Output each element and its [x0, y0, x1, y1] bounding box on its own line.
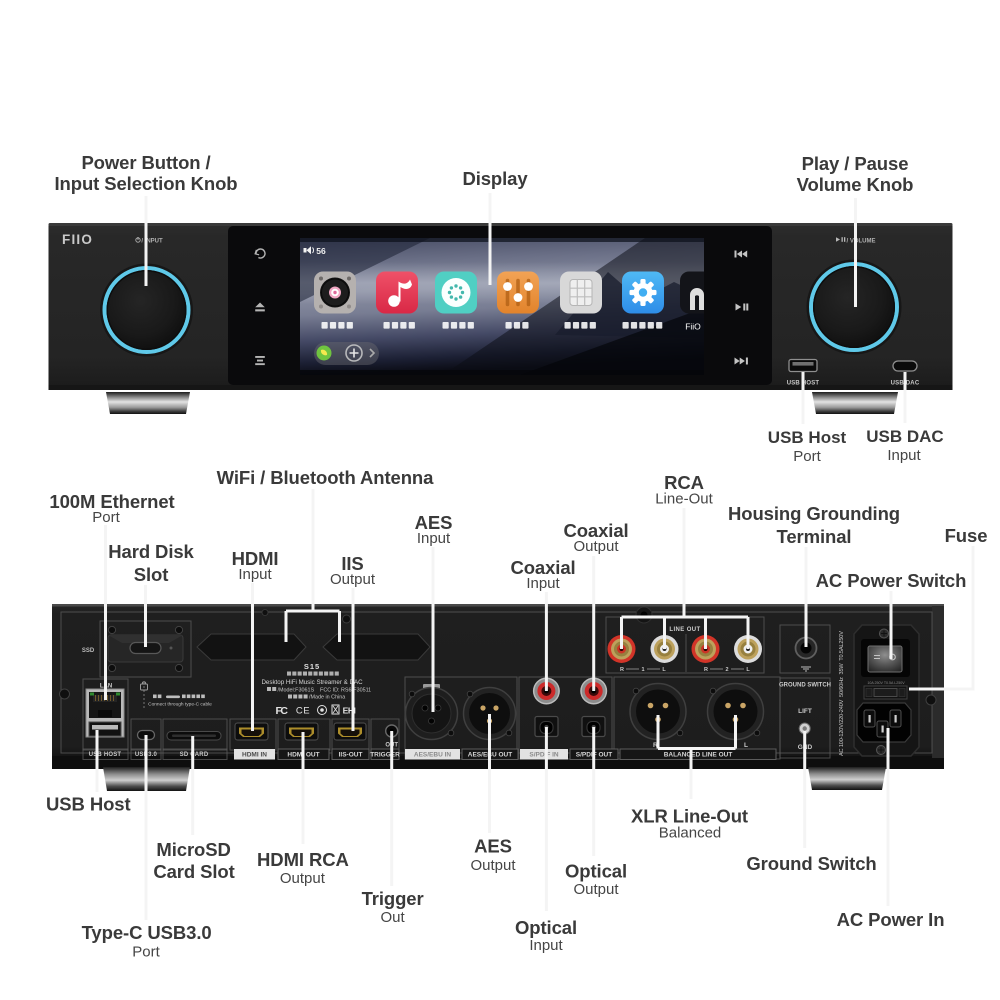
- svg-text:Output: Output: [470, 857, 516, 874]
- svg-text:IIS-OUT: IIS-OUT: [339, 752, 363, 759]
- svg-text:Terminal: Terminal: [777, 526, 852, 547]
- svg-text:USB HOST: USB HOST: [89, 752, 122, 758]
- svg-text:Connect through type-C cable: Connect through type-C cable: [148, 702, 212, 708]
- svg-text:56: 56: [316, 246, 326, 256]
- svg-text:LIFT: LIFT: [798, 708, 812, 715]
- svg-text:HDMI RCA: HDMI RCA: [257, 849, 349, 870]
- svg-text:GROUND SWITCH: GROUND SWITCH: [779, 683, 831, 689]
- svg-text:Optical: Optical: [515, 917, 577, 938]
- svg-text:XLR Line-Out: XLR Line-Out: [631, 806, 748, 827]
- svg-text:Input: Input: [417, 530, 451, 547]
- svg-text:CE: CE: [296, 706, 310, 717]
- svg-text:Input: Input: [529, 937, 563, 954]
- svg-text:BALANCED LINE OUT: BALANCED LINE OUT: [664, 752, 733, 759]
- svg-text:HDMI IN: HDMI IN: [242, 752, 267, 759]
- svg-text:Desktop HiFi Music Streamer &: Desktop HiFi Music Streamer & DAC: [261, 679, 363, 686]
- svg-text:FiiO: FiiO: [685, 322, 701, 332]
- svg-text:Output: Output: [330, 571, 376, 588]
- svg-text:Display: Display: [462, 168, 528, 189]
- svg-text:R: R: [704, 667, 708, 673]
- svg-text:FIIO: FIIO: [62, 232, 93, 247]
- svg-text:Input: Input: [238, 566, 272, 583]
- svg-text:Power Button /: Power Button /: [81, 152, 210, 173]
- svg-text:Output: Output: [280, 870, 326, 887]
- svg-text:Housing Grounding: Housing Grounding: [728, 503, 900, 524]
- svg-text:/ VOLUME: / VOLUME: [846, 239, 875, 245]
- svg-text:MicroSD: MicroSD: [156, 839, 230, 860]
- svg-text:AC Power Switch: AC Power Switch: [816, 570, 967, 591]
- svg-text:Volume Knob: Volume Knob: [797, 174, 914, 195]
- svg-text:USB DAC: USB DAC: [866, 427, 943, 446]
- svg-text:SD CARD: SD CARD: [180, 752, 209, 758]
- svg-text:Type-C USB3.0: Type-C USB3.0: [82, 922, 212, 943]
- svg-text:Port: Port: [132, 944, 160, 961]
- svg-text:L: L: [744, 742, 748, 749]
- svg-text:AC 100-120V/220-240V 50/60Hz: AC 100-120V/220-240V 50/60Hz 35W T0.5AL2…: [839, 631, 845, 756]
- svg-text:2: 2: [725, 667, 728, 673]
- svg-text:FC: FC: [276, 705, 289, 717]
- svg-text:SSD: SSD: [82, 648, 95, 654]
- svg-text:Output: Output: [573, 881, 619, 898]
- svg-text:Slot: Slot: [134, 564, 169, 585]
- svg-text:TRIGGER: TRIGGER: [370, 752, 400, 759]
- svg-text:USB Host: USB Host: [46, 794, 131, 815]
- svg-text:Line-Out: Line-Out: [655, 491, 713, 508]
- svg-text:S15: S15: [304, 662, 320, 671]
- svg-text:10A 250V T0.5A L250V: 10A 250V T0.5A L250V: [867, 681, 905, 685]
- svg-text:Ground Switch: Ground Switch: [746, 853, 876, 874]
- svg-text:Input Selection Knob: Input Selection Knob: [55, 173, 238, 194]
- svg-text:LINE OUT: LINE OUT: [669, 627, 700, 633]
- svg-text:R: R: [620, 667, 624, 673]
- svg-text:Output: Output: [573, 538, 619, 555]
- svg-text:Port: Port: [793, 448, 821, 465]
- svg-text:Port: Port: [92, 509, 120, 526]
- svg-text:AES/EBU IN: AES/EBU IN: [414, 752, 452, 759]
- svg-text:AC Power In: AC Power In: [837, 909, 945, 930]
- svg-text:/Model:F3061S FCC ID: RS6-F: /Model:F3061S FCC ID: RS6-F30511: [278, 688, 372, 694]
- svg-text:S/PDIF IN: S/PDIF IN: [529, 752, 559, 759]
- svg-text:Input: Input: [887, 447, 921, 464]
- svg-text:Hard Disk: Hard Disk: [108, 541, 194, 562]
- svg-text:Card Slot: Card Slot: [153, 861, 234, 882]
- svg-text:Play / Pause: Play / Pause: [802, 153, 909, 174]
- svg-text:USB Host: USB Host: [768, 428, 847, 447]
- svg-text:/Made in China: /Made in China: [309, 695, 345, 701]
- svg-text:Fuse: Fuse: [945, 525, 988, 546]
- svg-text:Optical: Optical: [565, 861, 627, 882]
- svg-text:Out: Out: [381, 909, 406, 926]
- svg-text:1: 1: [641, 667, 644, 673]
- svg-text:WiFi / Bluetooth Antenna: WiFi / Bluetooth Antenna: [217, 467, 434, 488]
- svg-text:AES: AES: [474, 836, 512, 857]
- svg-text:Trigger: Trigger: [362, 888, 424, 909]
- svg-text:Balanced: Balanced: [659, 825, 722, 842]
- svg-text:Input: Input: [526, 575, 560, 592]
